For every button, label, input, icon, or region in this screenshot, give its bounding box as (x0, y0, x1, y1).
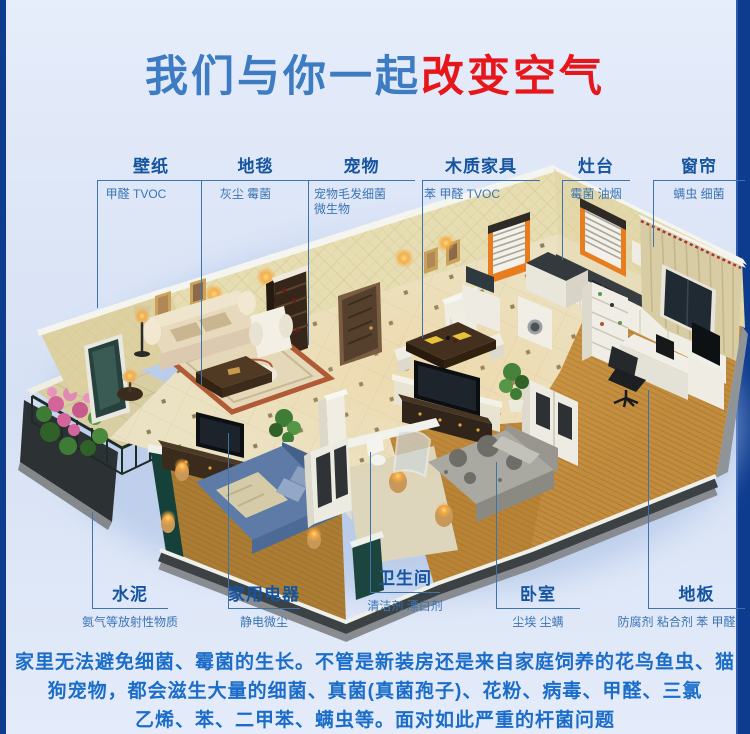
callout-line-h (422, 180, 540, 181)
callout-title: 窗帘 (643, 152, 750, 177)
callout-line-h (97, 180, 205, 181)
callout-desc: 尘埃 尘螨 (466, 613, 610, 630)
callout-line-v (496, 462, 497, 608)
callout-line-h (308, 180, 415, 181)
callout-line-v (308, 180, 309, 345)
callout-desc: 静电微尘 (198, 613, 330, 630)
footer-line-2: 狗宠物，都会滋生大量的细菌、真菌(真菌孢子)、花粉、病毒、甲醛、三氯 (0, 677, 750, 706)
callout-title: 卫生间 (360, 564, 450, 589)
footer-paragraph: 家里无法避免细菌、霉菌的生长。不管是新装房还是来自家庭饲养的花鸟鱼虫、猫 狗宠物… (0, 648, 750, 734)
callout-title: 地板 (638, 580, 750, 605)
callout-line-h (562, 180, 630, 181)
callout-desc: 氨气等放射性物质 (62, 613, 198, 630)
entry-door (338, 282, 382, 366)
callout-line-v (201, 180, 202, 385)
callout-title: 水泥 (82, 580, 178, 605)
callout-title: 卧室 (486, 580, 590, 605)
page: 我们与你一起改变空气 (0, 0, 750, 734)
footer-line-3: 乙烯、苯、二甲苯、螨虫等。面对如此严重的杆菌问题 (0, 706, 750, 734)
callout-desc: 苯 甲醛 TVOC (424, 185, 500, 202)
callout-desc: 防腐剂 粘合剂 苯 甲醛 (608, 613, 745, 630)
callout-line-h (201, 180, 310, 181)
callout-desc: 清洁剂 漂白剂 (340, 597, 470, 614)
callout-desc: 螨虫 细菌 (623, 185, 750, 202)
callout-line-h (496, 608, 580, 609)
callout-line-v (92, 512, 93, 608)
callout-line-h (92, 608, 168, 609)
callout-line-v (370, 452, 371, 592)
callout-line-v (422, 180, 423, 338)
callout-line-h (653, 180, 745, 181)
callout-line-h (648, 608, 745, 609)
callout-title: 家用电器 (218, 580, 310, 605)
callout-line-v (228, 433, 229, 608)
callout-title: 宠物 (298, 152, 425, 177)
callout-title: 木质家具 (412, 152, 550, 177)
callout-desc-line2: 微生物 (314, 200, 350, 217)
shower-screen (394, 431, 430, 476)
callout-desc: 灰尘 霉菌 (171, 185, 320, 202)
callout-line-h (370, 592, 440, 593)
callout-line-h (228, 608, 300, 609)
callout-line-v (648, 390, 649, 608)
callout-title: 灶台 (552, 152, 640, 177)
footer-line-1: 家里无法避免细菌、霉菌的生长。不管是新装房还是来自家庭饲养的花鸟鱼虫、猫 (0, 648, 750, 677)
